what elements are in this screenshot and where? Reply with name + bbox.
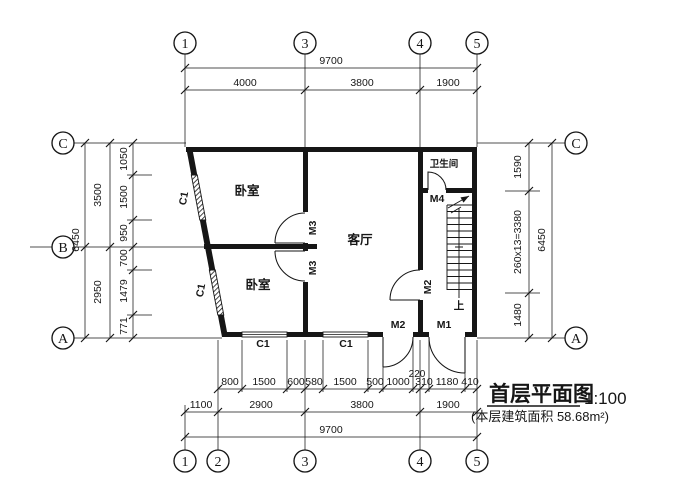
axis-bubble-c-left: C [52,132,74,154]
stairs [447,196,472,298]
window-c1-bottom-left [242,332,287,337]
room-label-bedroom-upper: 卧室 [234,183,260,198]
axis-label: 2 [215,455,222,470]
dim-bottom-detail: 1000 [386,376,410,388]
dim-bottom-detail: 580 [305,376,323,388]
window-c1-slant-upper [191,175,206,220]
axis-label: 3 [302,455,309,470]
window-c1-bottom-right [323,332,368,337]
axis-label: B [58,241,67,256]
axis-label: C [571,137,580,152]
floor-plan-page: 1 3 4 5 1 2 3 4 5 C B A C A [0,0,682,500]
drawing-title: 首层平面图 [489,382,594,406]
axis-bubble-c-right: C [565,132,587,154]
dim-left-detail: 771 [118,317,130,335]
dim-bottom-detail: 600 [287,376,305,388]
door-m2-exterior [383,337,413,367]
dimensions-right: 1590 260x13=3380 1480 6450 [512,155,548,327]
room-label-bedroom-lower: 卧室 [245,277,271,292]
wall-top [186,147,477,152]
axis-label: 5 [474,455,481,470]
dim-top-seg: 3800 [350,77,374,89]
window-tag-c1: C1 [194,283,208,299]
walls [186,147,477,337]
axis-label: 3 [302,37,309,52]
axis-bubble-a-right: A [565,327,587,349]
dim-left-mid: 3500 [92,183,104,207]
axis-label: 5 [474,37,481,52]
axis-bubbles-right: C A [565,132,587,349]
dim-bottom-mid: 2900 [249,399,273,411]
axis-label: 1 [182,455,189,470]
door-tag-m1: M1 [437,319,452,331]
dim-bottom-detail: 500 [366,376,384,388]
drawing-scale: 1:100 [584,389,627,408]
dim-bottom-detail: 1500 [333,376,357,388]
dim-bottom-detail: 800 [221,376,239,388]
axis-bubbles-top: 1 3 4 5 [174,32,488,54]
door-tag-m3: M3 [307,221,319,236]
room-labels: 卧室 卧室 客厅 卫生间 [234,158,458,292]
axis-bubble-4-top: 4 [409,32,431,54]
wall-interior-bedrooms [303,152,308,212]
axis-bubble-5-bottom: 5 [466,450,488,472]
dimensions-left: 1050 1500 950 700 1479 771 3500 2950 645… [70,147,130,335]
door-m3-upper [275,213,305,243]
dim-bottom-mid: 3800 [350,399,374,411]
axis-label: C [58,137,67,152]
door-tag-m4: M4 [430,193,445,205]
title-block: 首层平面图 1:100 (本层建筑面积 58.68m²) [471,382,627,424]
dimensions-top: 9700 4000 3800 1900 [233,55,460,89]
stair-arrow-icon [461,196,470,203]
dim-top-seg: 4000 [233,77,257,89]
dimensions-bottom: 800 1500 600 580 1500 500 1000 220 310 1… [190,369,479,436]
axis-bubble-a-left: A [52,327,74,349]
door-tag-m3: M3 [307,261,319,276]
window-tag-c1: C1 [339,338,353,350]
dim-left-overall: 6450 [70,228,82,252]
door-m3-lower [275,251,305,281]
dim-right-detail: 1590 [512,155,524,179]
dim-bottom-detail: 1500 [252,376,276,388]
axis-label: 4 [417,37,424,52]
room-label-living-room: 客厅 [346,232,373,247]
door-m2-interior [390,270,420,300]
axis-bubble-5-top: 5 [466,32,488,54]
door-m4-bathroom [428,172,446,190]
axis-bubbles-bottom: 1 2 3 4 5 [174,450,488,472]
wall-interior-stairhall [418,152,423,270]
dim-top-overall: 9700 [319,55,343,67]
axis-bubble-2-bottom: 2 [207,450,229,472]
dim-left-detail: 1479 [118,279,130,303]
axis-label: 4 [417,455,424,470]
door-tag-m2: M2 [422,280,434,295]
room-label-bathroom: 卫生间 [430,158,459,170]
axis-bubble-1-top: 1 [174,32,196,54]
axis-label: A [571,332,582,347]
dim-left-detail: 950 [118,224,130,242]
window-c1-slant-lower [209,270,224,315]
dim-right-detail: 260x13=3380 [512,210,524,274]
dim-bottom-mid: 1100 [190,399,213,411]
axis-bubble-1-bottom: 1 [174,450,196,472]
wall-right [472,147,477,337]
axis-bubble-3-top: 3 [294,32,316,54]
window-tag-c1: C1 [256,338,270,350]
axis-label: 1 [182,37,189,52]
dim-top-seg: 1900 [436,77,460,89]
floor-plan-drawing: 1 3 4 5 1 2 3 4 5 C B A C A [0,0,682,500]
dim-bottom-overall: 9700 [319,424,343,436]
door-tag-m2: M2 [391,319,406,331]
dim-bottom-detail: 310 [415,376,433,388]
dim-right-overall: 6450 [536,228,548,252]
dim-bottom-detail: 410 [461,376,479,388]
area-note: (本层建筑面积 58.68m²) [471,409,609,424]
door-m1-entrance [429,337,465,373]
dim-left-mid: 2950 [92,280,104,304]
axis-label: A [58,332,69,347]
dim-left-detail: 700 [118,249,130,267]
wall-interior-middle [204,244,317,249]
windows [191,175,368,337]
axis-bubble-4-bottom: 4 [409,450,431,472]
dim-left-detail: 1500 [118,185,130,209]
window-tag-c1: C1 [177,191,191,207]
wall-bathroom [423,188,428,193]
dim-right-detail: 1480 [512,303,524,327]
dim-bottom-mid: 1900 [436,399,460,411]
stair-up-label: 上 [454,299,465,312]
axis-bubble-3-bottom: 3 [294,450,316,472]
dim-bottom-detail: 1180 [436,376,459,388]
dim-left-detail: 1050 [118,147,130,171]
